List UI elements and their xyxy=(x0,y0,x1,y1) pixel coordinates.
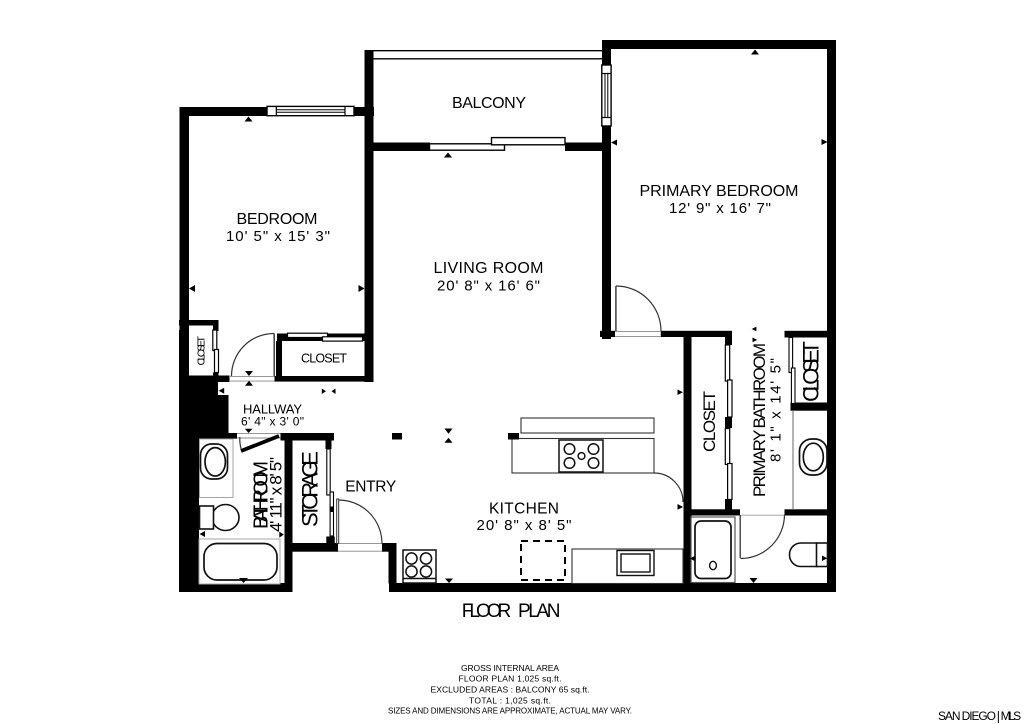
svg-text:6' 4" x 3' 0": 6' 4" x 3' 0" xyxy=(241,414,304,428)
svg-text:20' 8" x 8' 5": 20' 8" x 8' 5" xyxy=(477,517,572,534)
svg-text:4' 11" x 8' 5": 4' 11" x 8' 5" xyxy=(267,457,286,532)
svg-text:KITCHEN: KITCHEN xyxy=(489,501,559,518)
svg-text:PRIMARY BATHROOM: PRIMARY BATHROOM xyxy=(750,343,769,497)
svg-text:ENTRY: ENTRY xyxy=(345,479,396,496)
svg-text:LIVING ROOM: LIVING ROOM xyxy=(434,260,544,277)
svg-text:CLOSET: CLOSET xyxy=(196,335,208,365)
svg-text:GROSS INTERNAL AREA: GROSS INTERNAL AREA xyxy=(461,663,559,673)
svg-text:MLS: MLS xyxy=(1001,709,1022,723)
svg-text:FLOOR PLAN 1,025 sq.ft.: FLOOR PLAN 1,025 sq.ft. xyxy=(459,674,562,684)
svg-text:20' 8" x 16' 6": 20' 8" x 16' 6" xyxy=(437,278,540,295)
svg-text:|: | xyxy=(997,710,1000,724)
svg-text:PRIMARY BEDROOM: PRIMARY BEDROOM xyxy=(640,183,799,200)
svg-text:BEDROOM: BEDROOM xyxy=(237,211,318,228)
svg-text:10' 5" x 15' 3": 10' 5" x 15' 3" xyxy=(226,228,330,245)
svg-text:12' 9" x 16' 7": 12' 9" x 16' 7" xyxy=(669,200,771,217)
svg-text:PLAN: PLAN xyxy=(518,601,561,622)
svg-text:SIZES AND DIMENSIONS ARE APPRO: SIZES AND DIMENSIONS ARE APPROXIMATE, AC… xyxy=(388,706,632,715)
svg-text:BALCONY: BALCONY xyxy=(452,95,526,112)
svg-text:EXCLUDED AREAS : BALCONY 65 s: EXCLUDED AREAS : BALCONY 65 sq.ft. xyxy=(431,685,590,695)
svg-text:TOTAL : 1,025 sq.ft.: TOTAL : 1,025 sq.ft. xyxy=(469,696,551,706)
svg-text:STORAGE: STORAGE xyxy=(298,451,323,527)
svg-text:CLOSET: CLOSET xyxy=(798,341,823,402)
svg-text:CLOSET: CLOSET xyxy=(301,352,347,366)
svg-text:FLOOR: FLOOR xyxy=(462,601,512,622)
svg-text:SAN DIEGO: SAN DIEGO xyxy=(938,709,996,723)
svg-text:8' 1" x 14' 5": 8' 1" x 14' 5" xyxy=(768,358,785,462)
svg-text:CLOSET: CLOSET xyxy=(700,391,719,452)
